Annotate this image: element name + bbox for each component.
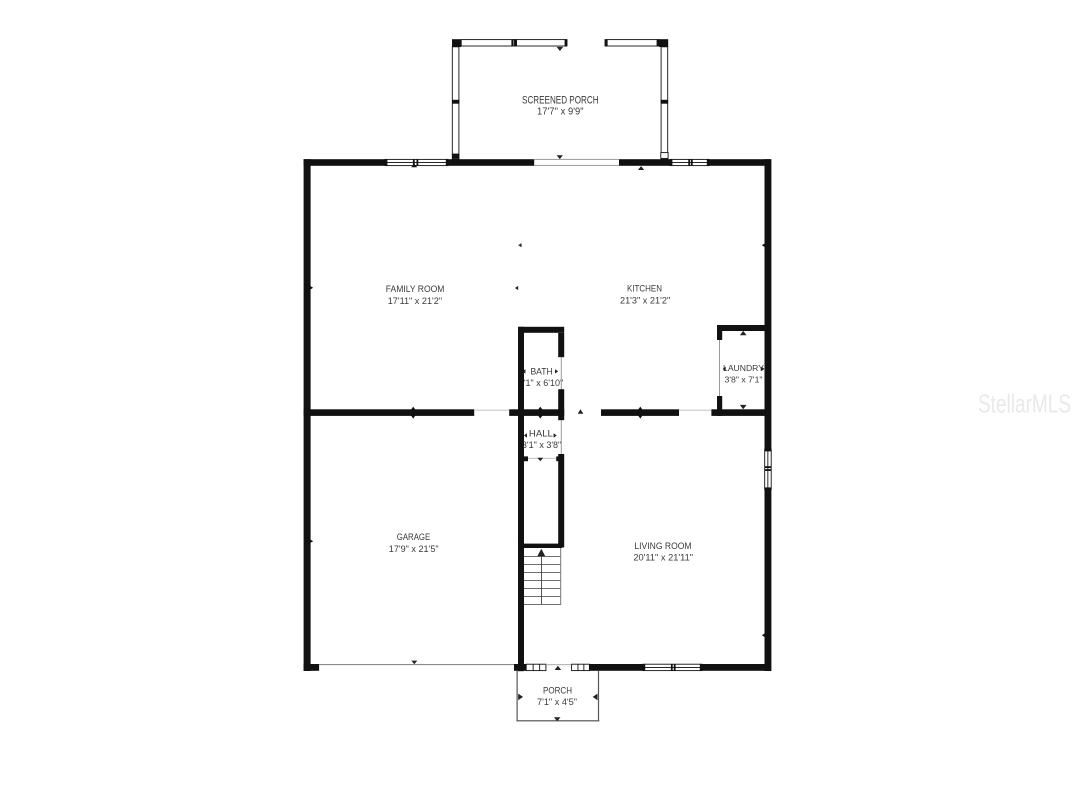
svg-text:21'3" x 21'2": 21'3" x 21'2" xyxy=(620,295,670,305)
svg-text:GARAGE: GARAGE xyxy=(397,532,431,542)
svg-text:3'1" x 3'8": 3'1" x 3'8" xyxy=(522,440,561,450)
svg-text:7'1" x 4'5": 7'1" x 4'5" xyxy=(537,697,577,707)
svg-text:FAMILY ROOM: FAMILY ROOM xyxy=(386,284,445,294)
svg-text:HALL: HALL xyxy=(529,429,553,439)
svg-text:KITCHEN: KITCHEN xyxy=(627,284,662,294)
svg-text:3'8" x 7'1": 3'8" x 7'1" xyxy=(725,374,763,384)
svg-text:5'1" x 6'10": 5'1" x 6'10" xyxy=(519,378,563,388)
svg-text:17'11" x 21'2": 17'11" x 21'2" xyxy=(388,296,442,306)
svg-text:17'7'' x 9'9": 17'7'' x 9'9" xyxy=(537,107,584,118)
svg-text:17'9" x 21'5": 17'9" x 21'5" xyxy=(389,544,439,554)
svg-text:StellarMLS: StellarMLS xyxy=(978,389,1071,419)
svg-text:PORCH: PORCH xyxy=(543,686,572,696)
svg-text:BATH: BATH xyxy=(530,366,552,376)
svg-text:SCREENED PORCH: SCREENED PORCH xyxy=(522,94,599,106)
svg-text:20'11" x 21'11": 20'11" x 21'11" xyxy=(633,552,693,562)
svg-text:LAUNDRY: LAUNDRY xyxy=(723,363,764,373)
svg-text:LIVING ROOM: LIVING ROOM xyxy=(634,541,691,551)
